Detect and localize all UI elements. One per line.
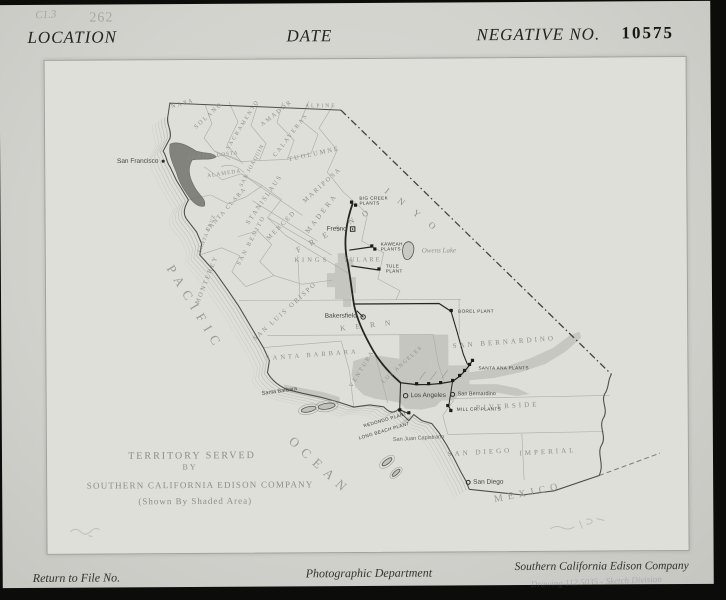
county-label-alpine: ALPINE [305, 103, 337, 109]
handwritten-note: Drawing 112 5035 - Sketch Division [531, 574, 662, 589]
file-code-annotation: C1.3 [35, 8, 57, 21]
town-label-san-diego: San Diego [473, 479, 503, 486]
town-label-bakersfield: Bakersfield [325, 312, 357, 319]
return-to-file-label: Return to File No. [33, 570, 120, 586]
map-title-line3: SOUTHERN CALIFORNIA EDISON COMPANY [87, 479, 314, 490]
map-title-line4: (Shown By Shaded Area) [138, 496, 252, 507]
county-label-kings: KINGS [294, 257, 329, 264]
company-label: Southern California Edison Company [515, 560, 689, 573]
date-label: DATE [286, 26, 332, 46]
plant-label-santa-ana: SANTA ANA PLANTS [478, 365, 529, 371]
town-label-los-angeles: Los Angeles [411, 392, 446, 399]
town-label-fresno: Fresno [327, 226, 347, 233]
plant-label-tule: TULE PLANT [386, 263, 408, 274]
location-label: LOCATION [27, 27, 117, 48]
town-label-san-francisco: San Francisco [117, 158, 159, 165]
map-title-line1: TERRITORY SERVED [128, 450, 256, 462]
negative-no-label: NEGATIVE NO. [476, 25, 600, 46]
plant-label-kaweah: KAWEAH PLANTS [381, 241, 407, 252]
plant-label-mill-creek: MILL CR. PLANTS [457, 406, 501, 412]
plant-label-borel: BOREL PLANT [458, 309, 494, 315]
map-title-line2: BY [182, 462, 197, 471]
county-label-tulare: TULARE [344, 256, 382, 263]
town-label-san-bernardino: San Bernardino [458, 391, 496, 397]
photographic-department-label: Photographic Department [306, 566, 432, 582]
photo-record-card: C1.3 262 LOCATION DATE NEGATIVE NO. 1057… [0, 1, 714, 588]
owens-lake-label: Owens Lake [422, 246, 456, 254]
stamp-number: 262 [89, 10, 113, 26]
plant-label-big-creek: BIG CREEK PLANTS [359, 196, 389, 207]
negative-number: 10575 [621, 23, 674, 43]
